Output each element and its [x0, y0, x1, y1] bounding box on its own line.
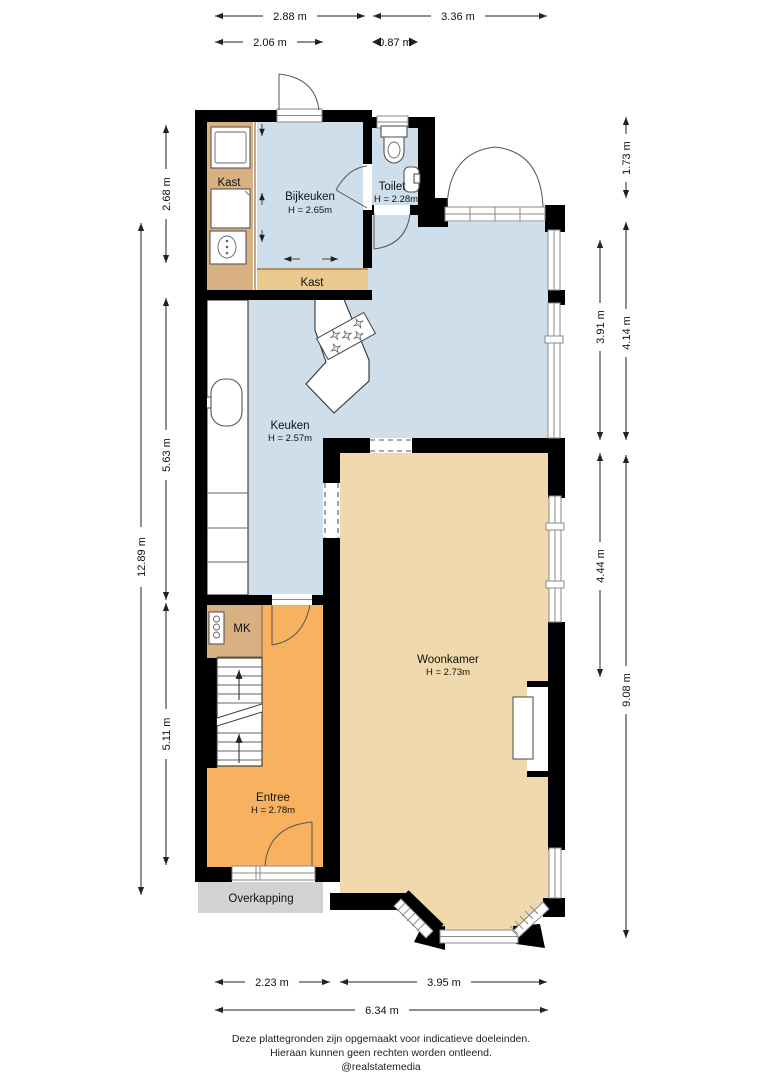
dim-right-1: 1.73 m [621, 117, 633, 198]
svg-text:2.88 m: 2.88 m [273, 11, 307, 23]
dim-top-2: 3.36 m [373, 11, 547, 23]
bijkeuken-height: H = 2.65m [288, 205, 332, 216]
svg-text:4.14 m: 4.14 m [621, 316, 633, 350]
kast-bottom-label: Kast [300, 277, 324, 289]
dim-bottom-2: 3.95 m [340, 977, 547, 989]
footer-credit: @realstatemedia [341, 1061, 421, 1073]
keuken-woonkamer-opening-side [323, 483, 340, 538]
dim-top-4: 0.87 m [372, 37, 418, 49]
floor-plan-drawing: Kast Bijkeuken H = 2.65m Toilet H = 2.28… [0, 0, 763, 1080]
keuken-label: Keuken [270, 420, 309, 432]
boiler-icon [210, 231, 246, 264]
svg-text:5.11 m: 5.11 m [161, 718, 173, 751]
dim-bottom-1: 2.23 m [215, 977, 330, 989]
dim-bottom-3: 6.34 m [215, 1005, 548, 1017]
entree-height: H = 2.78m [251, 805, 295, 816]
dim-right-2: 4.14 m [621, 222, 633, 440]
svg-text:2.68 m: 2.68 m [161, 177, 173, 211]
svg-text:5.63 m: 5.63 m [161, 438, 173, 472]
dim-left-2: 5.63 m [161, 298, 173, 600]
toilet-icon [381, 126, 407, 163]
svg-text:9.08 m: 9.08 m [621, 673, 633, 707]
meter-cabinet-icon [209, 612, 224, 644]
footer-line-1: Deze plattegronden zijn opgemaakt voor i… [232, 1033, 530, 1045]
floor-plan-page: Kast Bijkeuken H = 2.65m Toilet H = 2.28… [0, 0, 763, 1080]
dim-right-5: 9.08 m [621, 455, 633, 938]
hand-basin-icon [404, 167, 420, 192]
footer-line-2: Hieraan kunnen geen rechten worden ontle… [270, 1047, 492, 1059]
kast-left-label: Kast [217, 177, 241, 189]
washing-machine-icon [211, 127, 250, 168]
dim-top-1: 2.88 m [215, 11, 365, 23]
dim-right-4: 4.44 m [595, 453, 607, 677]
woonkamer-label: Woonkamer [417, 654, 479, 666]
keuken-window-right-2 [545, 303, 563, 438]
svg-text:3.95 m: 3.95 m [427, 977, 461, 989]
keuken-woonkamer-opening [370, 438, 412, 453]
garden-double-doors [445, 147, 545, 221]
entree-label: Entree [256, 792, 290, 804]
svg-text:1.73 m: 1.73 m [621, 141, 633, 175]
footer-disclaimer: Deze plattegronden zijn opgemaakt voor i… [232, 1033, 530, 1073]
overkapping-label: Overkapping [228, 893, 293, 905]
svg-text:0.87 m: 0.87 m [378, 37, 412, 49]
toilet-height: H = 2.28m [374, 194, 418, 205]
svg-text:3.36 m: 3.36 m [441, 11, 475, 23]
mk-label: MK [233, 623, 251, 635]
toilet-label: Toilet [379, 181, 407, 193]
svg-text:2.23 m: 2.23 m [255, 977, 289, 989]
dim-left-4: 12.89 m [136, 223, 148, 895]
bijkeuken-door [277, 74, 322, 122]
svg-text:12.89 m: 12.89 m [136, 537, 148, 577]
cabinet-icon [211, 189, 250, 228]
room-woonkamer-floor [340, 453, 550, 931]
keuken-window-right-1 [548, 230, 560, 290]
woonkamer-height: H = 2.73m [426, 667, 470, 678]
svg-text:2.06 m: 2.06 m [253, 37, 287, 49]
dim-top-3: 2.06 m [215, 37, 323, 49]
dim-right-3: 3.91 m [595, 240, 607, 440]
svg-text:4.44 m: 4.44 m [595, 549, 607, 583]
svg-text:6.34 m: 6.34 m [365, 1005, 399, 1017]
keuken-height: H = 2.57m [268, 433, 312, 444]
fireplace-icon [513, 687, 548, 771]
woonkamer-window-right-2 [549, 848, 561, 898]
svg-text:3.91 m: 3.91 m [595, 310, 607, 344]
bijkeuken-label: Bijkeuken [285, 191, 335, 203]
dim-left-1: 2.68 m [161, 125, 173, 263]
woonkamer-window-right-1 [546, 496, 564, 622]
dim-left-3: 5.11 m [161, 603, 173, 865]
stairs-icon [217, 658, 262, 766]
